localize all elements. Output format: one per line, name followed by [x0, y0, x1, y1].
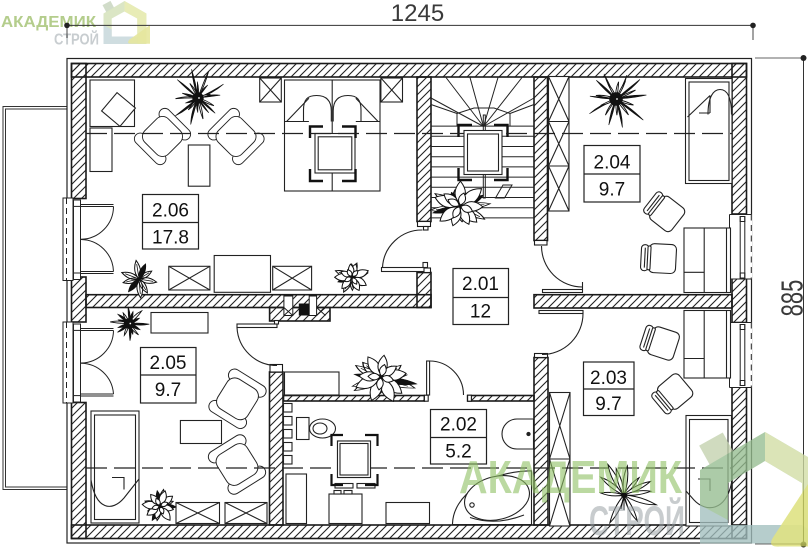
svg-text:12: 12	[470, 302, 491, 323]
svg-text:9.7: 9.7	[599, 180, 625, 201]
svg-text:2.01: 2.01	[462, 274, 499, 295]
svg-text:9.7: 9.7	[155, 380, 181, 401]
svg-text:2.02: 2.02	[440, 415, 477, 436]
svg-text:СТРОЙ: СТРОЙ	[589, 496, 685, 544]
svg-text:АКАДЕМИК: АКАДЕМИК	[1, 14, 97, 31]
svg-text:9.7: 9.7	[595, 394, 621, 415]
svg-text:АКАДЕМИК: АКАДЕМИК	[459, 451, 683, 503]
svg-text:17.8: 17.8	[152, 228, 189, 249]
svg-text:2.05: 2.05	[150, 353, 187, 374]
svg-text:2.06: 2.06	[152, 201, 189, 222]
svg-text:885: 885	[775, 280, 808, 317]
svg-text:2.04: 2.04	[594, 153, 631, 174]
svg-text:1245: 1245	[391, 0, 444, 27]
svg-text:2.03: 2.03	[590, 368, 627, 389]
svg-text:СТРОЙ: СТРОЙ	[54, 31, 99, 49]
